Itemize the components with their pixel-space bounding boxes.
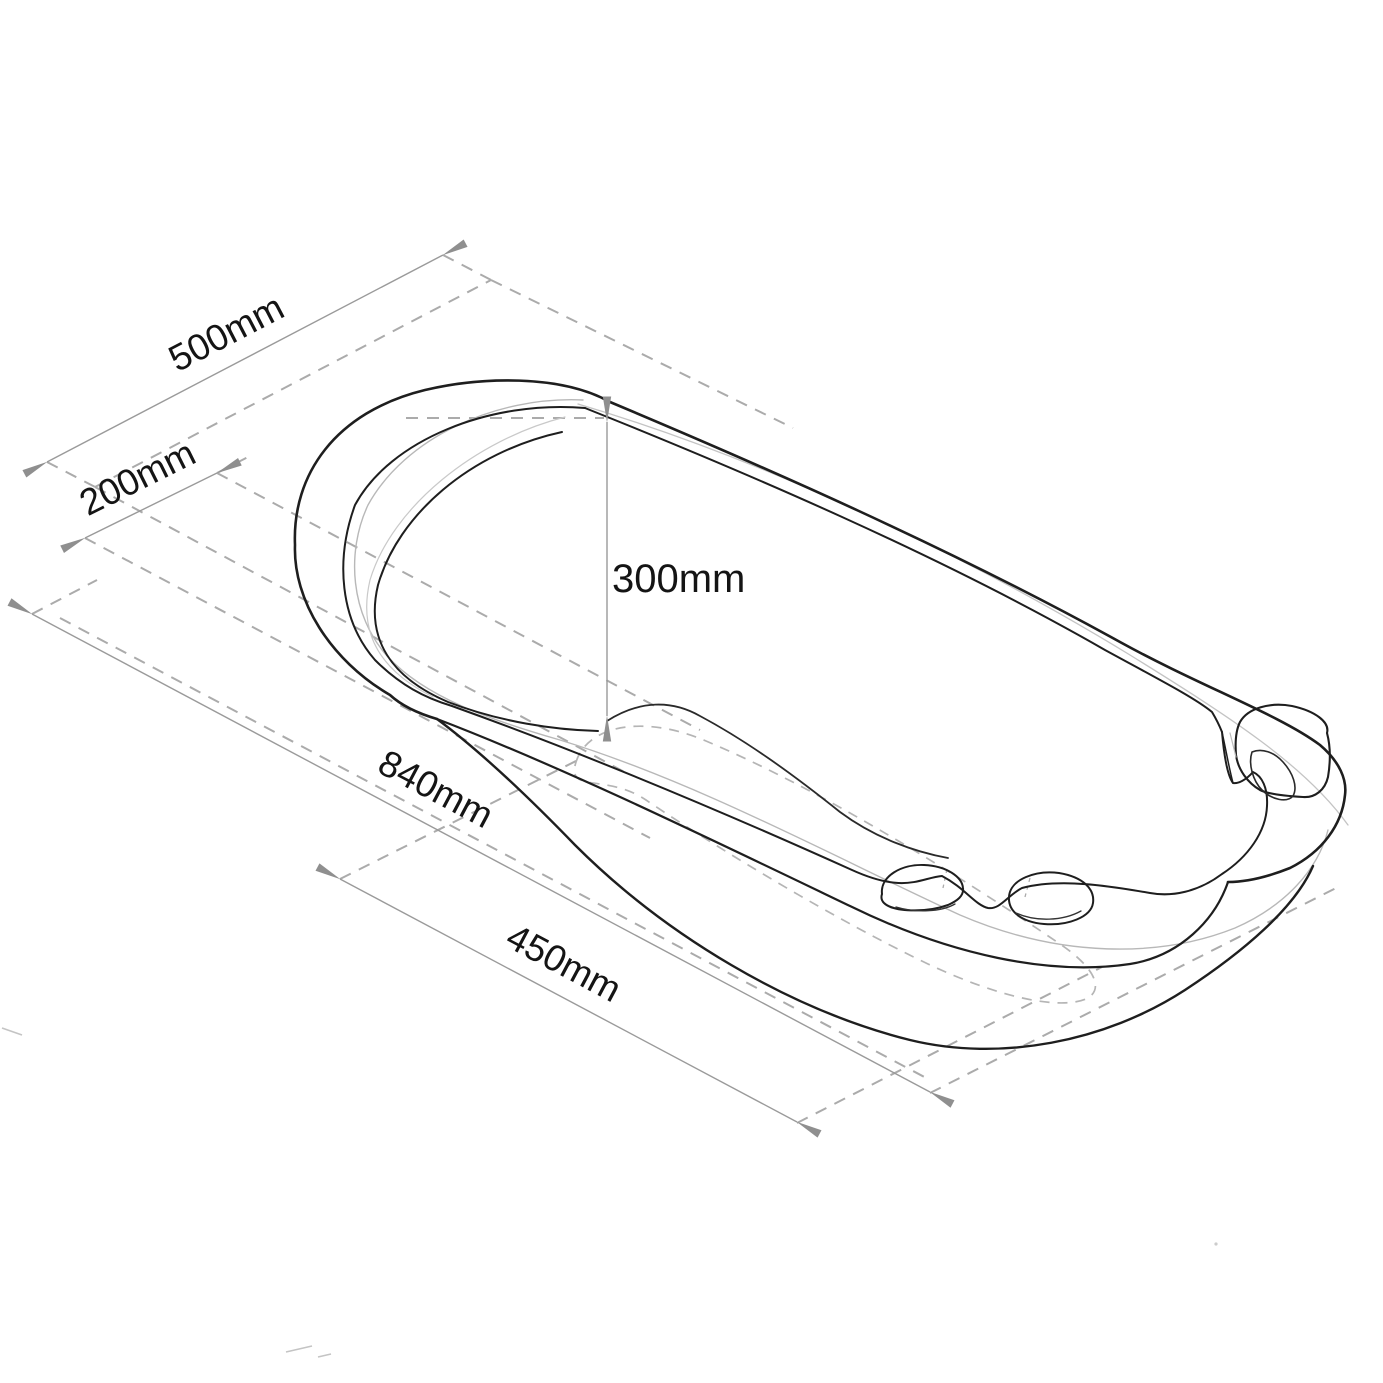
dim-label-top-width: 500mm: [162, 286, 290, 379]
tub-near-rim-outer-edge: [437, 719, 1228, 967]
construction-length-edge-2: [95, 487, 630, 775]
dim-line-500mm: [47, 255, 443, 462]
tub-outline: [295, 380, 1348, 1048]
stray-mark-bottom-center-2: [318, 1354, 331, 1357]
dim-line-840mm: [32, 614, 930, 1092]
stray-mark-bottom-left: [2, 1028, 22, 1035]
construction-lines: [32, 255, 1340, 1123]
construction-ext-200-right: [217, 457, 248, 473]
construction-length-edge-1: [491, 280, 793, 428]
stray-mark-bottom-center-1: [286, 1346, 312, 1352]
construction-length-edge-5: [60, 618, 930, 1080]
stray-marks: [2, 1028, 1218, 1357]
tub-handle-left-lobe: [881, 865, 963, 910]
tub-handle-right-inner-line: [1016, 911, 1081, 919]
tub-foot-handle-hole: [1236, 705, 1330, 797]
dim-line-450mm: [340, 879, 797, 1122]
construction-ext-500-right: [443, 255, 497, 283]
dimension-annotations: 500mm 200mm 300mm 840mm 450mm: [32, 255, 930, 1122]
bathtub-dimension-diagram: 500mm 200mm 300mm 840mm 450mm: [0, 0, 1383, 1383]
stray-dot: [1214, 1242, 1217, 1245]
tub-shell-bottom: [437, 719, 1313, 1049]
dim-label-height: 300mm: [612, 557, 745, 601]
diagram-svg: 500mm 200mm 300mm 840mm 450mm: [0, 0, 1383, 1383]
dim-label-base-length: 450mm: [500, 916, 628, 1010]
construction-length-edge-3: [217, 473, 700, 730]
tub-handle-right-lobe: [1009, 872, 1093, 924]
construction-ext-840-left: [32, 580, 97, 614]
tub-far-rim-highlight: [578, 404, 1348, 825]
